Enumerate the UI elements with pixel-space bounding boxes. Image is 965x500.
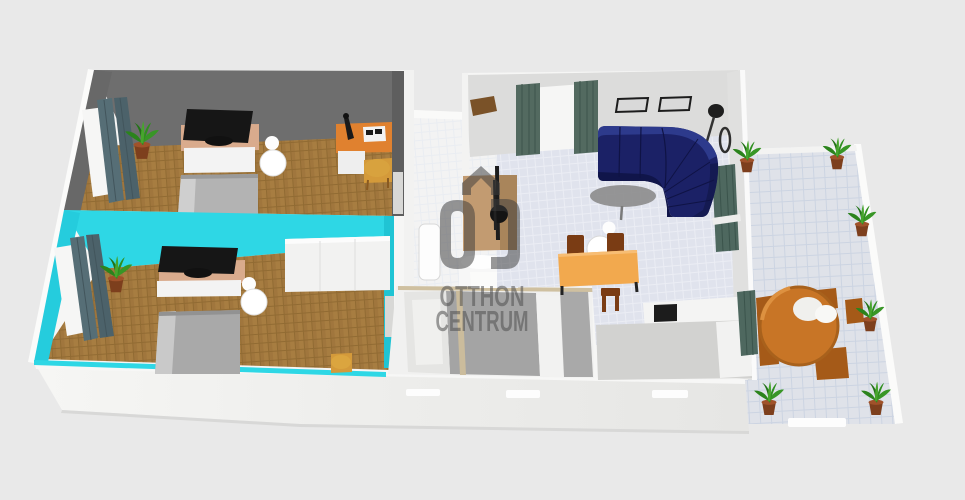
svg-text:CENTRUM: CENTRUM (436, 306, 529, 338)
